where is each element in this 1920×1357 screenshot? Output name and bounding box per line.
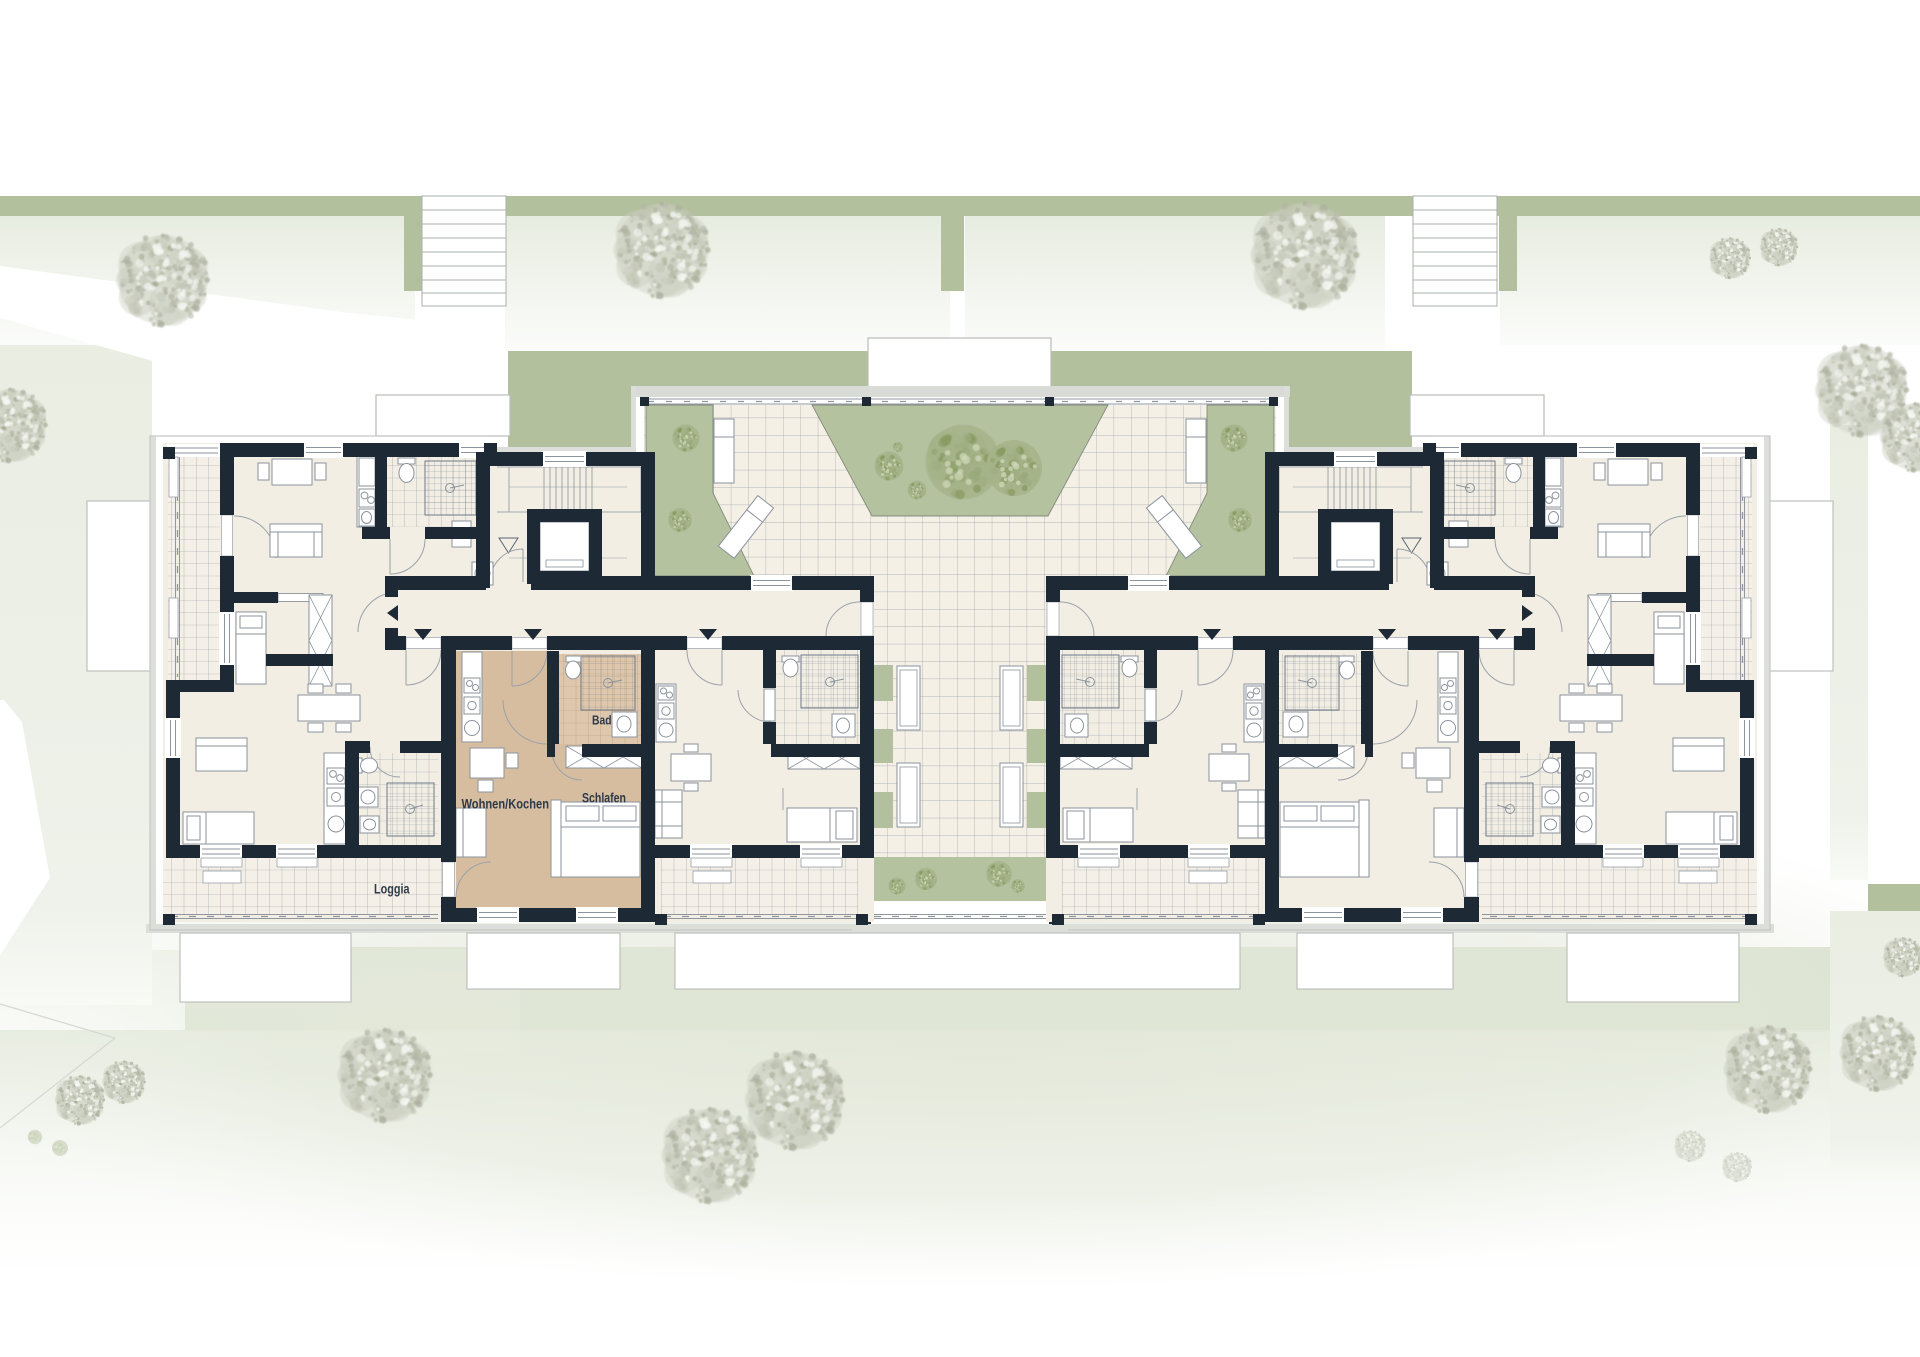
svg-text:Bad: Bad [592, 713, 612, 728]
svg-text:Wohnen/Kochen: Wohnen/Kochen [462, 796, 550, 812]
svg-text:Schlafen: Schlafen [582, 790, 626, 806]
svg-text:Loggia: Loggia [374, 881, 410, 897]
